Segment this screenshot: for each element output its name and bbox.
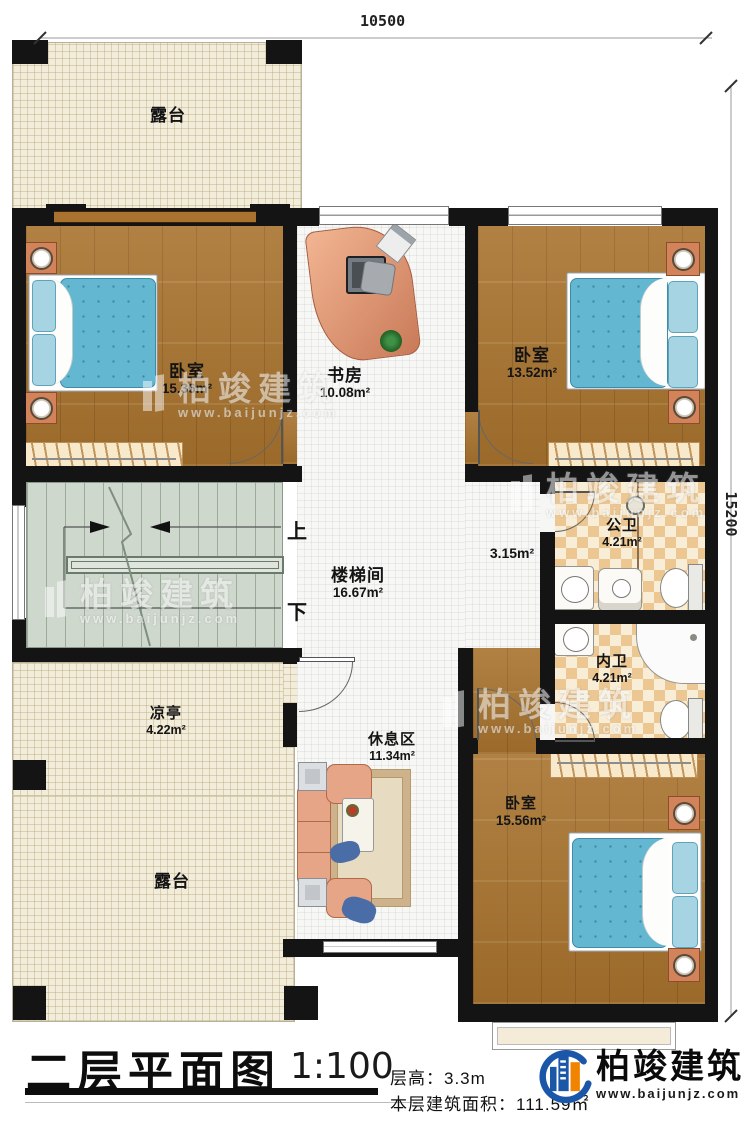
window [319,206,449,225]
door-leaf [299,657,355,662]
brand-name: 柏竣建筑 [596,1050,744,1086]
column [266,40,302,64]
nightstand [25,242,57,274]
stairs-up-label: 上 [287,515,307,544]
pillow [672,896,698,948]
pillow [32,280,56,332]
pillow [32,334,56,386]
wall [449,208,508,226]
room-label-terrace-top: 露台 [108,106,228,125]
wall [540,482,555,494]
side-table [298,878,327,907]
wall [12,648,302,662]
column [250,204,290,226]
nightstand [668,390,700,424]
wall [465,466,718,482]
room-label-study: 书房10.08m² [285,366,405,400]
door-gap-public-bath [540,494,555,532]
nightstand [668,948,700,982]
room-label-corridor-area: 3.15m² [470,546,554,562]
title-underline-thin [25,1102,417,1103]
plant-icon [380,330,402,352]
wall [12,466,302,482]
room-label-public-bath: 公卫4.21m² [562,518,682,549]
wall [540,532,555,612]
brand-block: 柏竣建筑 www.baijunjz.com [536,1050,744,1108]
room-label-private-bath: 内卫4.21m² [552,654,672,685]
side-table [298,762,327,791]
wall [295,208,319,226]
wall [283,648,297,664]
door-gap-bedroom-topright [465,412,478,464]
column [13,760,46,790]
flower-vase-icon [346,804,359,817]
stairs-down-label: 下 [287,596,307,625]
door-leaf [555,740,595,742]
room-label-bedroom-topleft: 卧室15.36m² [125,362,249,396]
floor-plan-page: 10500 15200 露台 卧室15.36m² 书房10.08m² 卧室13.… [0,0,750,1125]
room-label-bedroom-topright: 卧室13.52m² [470,346,594,380]
window [508,206,662,225]
brand-url: www.baijunjz.com [596,1086,744,1101]
bed-sheet [642,838,669,946]
wall [458,1004,718,1022]
door-leaf [478,410,480,464]
bathroom-sink [554,620,594,656]
door-leaf [477,688,479,740]
terrace-door-sill [54,211,256,223]
stair-handrail [66,556,284,574]
wall [12,208,26,482]
wall [458,648,473,740]
wall [458,738,473,1022]
drawing-scale: 1:100 [290,1046,394,1087]
nightstand [668,796,700,830]
dimension-top: 10500 [360,12,405,30]
column [12,40,48,64]
door-leaf [281,410,283,464]
shower-head-icon [626,496,645,515]
window [323,941,437,953]
nightstand [25,392,57,424]
door-leaf [555,491,595,493]
terrace-top-floor [12,42,302,214]
toilet-tank [688,564,703,612]
window [12,505,25,620]
room-label-stairwell: 楼梯间16.67m² [296,566,420,600]
pavilion-terrace-divider-line [12,795,295,796]
column [13,986,46,1020]
bathtub-drain-icon [690,634,697,641]
bay-window [492,1022,676,1050]
room-label-pavilion: 凉亭4.22m² [106,706,226,737]
door-gap-private-bath [540,704,555,740]
wall [283,703,297,747]
wall [12,482,26,507]
door-gap-bedroom-topleft [283,412,297,464]
brand-logo-icon [536,1050,592,1108]
pillow [668,336,698,388]
dimension-right: 15200 [722,479,740,549]
washing-machine [598,568,642,612]
bed-sheet [640,278,667,386]
sofa [297,786,331,884]
floor-height-text: 层高：3.3m [390,1064,486,1089]
room-label-bedroom-bottom: 卧室15.56m² [460,796,582,828]
wall [540,610,718,624]
room-label-rest-area: 休息区11.34m² [332,732,452,763]
room-label-terrace-bottom: 露台 [112,872,232,891]
wall [465,208,478,412]
nightstand [666,242,700,276]
pillow [668,281,698,333]
bathroom-sink [552,566,594,610]
title-underline-thick [25,1088,378,1095]
desk-chair [360,260,397,297]
column [284,986,318,1020]
pillow [672,842,698,894]
door-gap-pavilion [283,664,297,703]
